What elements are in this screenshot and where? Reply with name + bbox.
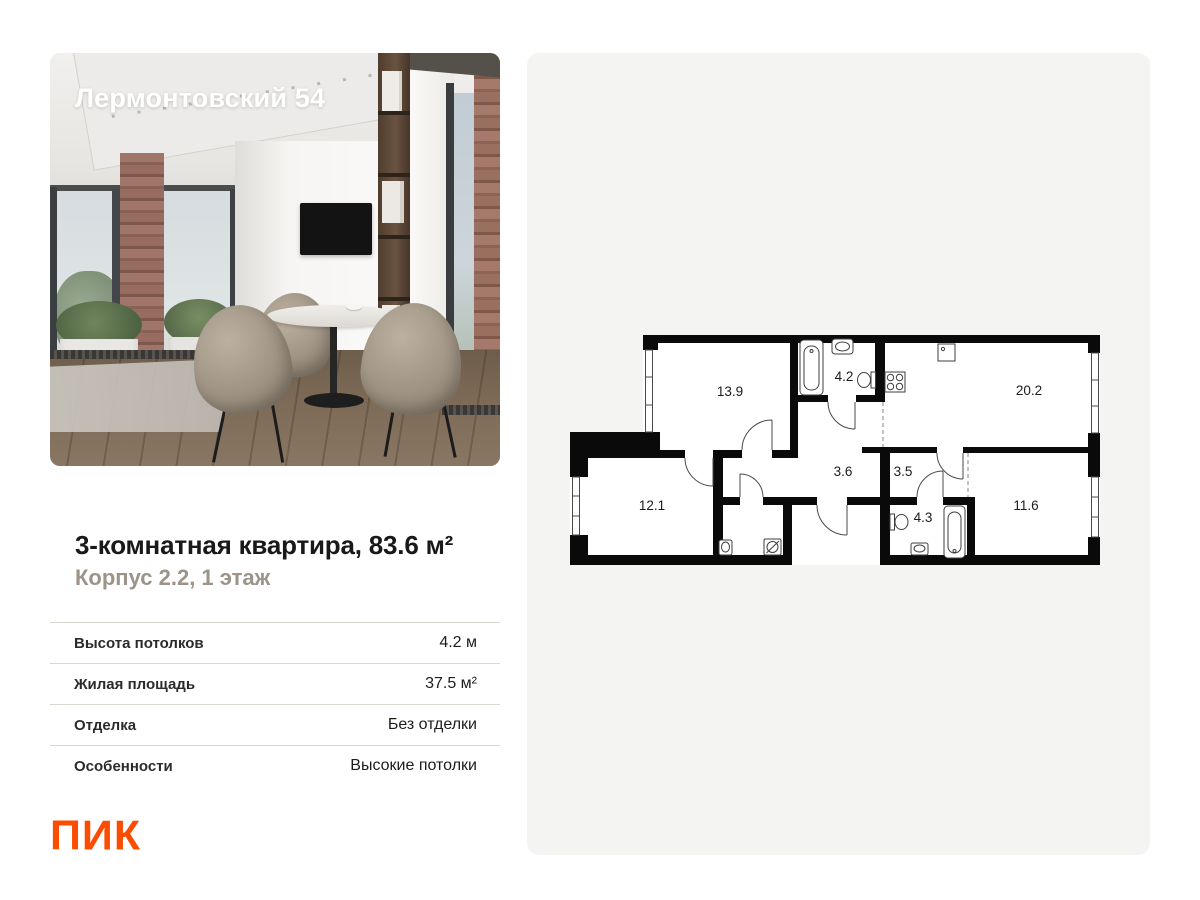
room-area-label: 12.1: [639, 498, 665, 513]
apartment-photo: Лермонтовский 54: [50, 53, 500, 466]
room-area-label: 4.3: [914, 510, 933, 525]
spec-value: Без отделки: [388, 716, 477, 734]
spec-value: 37.5 м²: [425, 675, 477, 693]
listing-title: 3-комнатная квартира, 83.6 м²: [75, 530, 505, 561]
room-area-label: 11.6: [1013, 498, 1038, 513]
project-name-overlay: Лермонтовский 54: [75, 83, 325, 114]
photo-art-tv: [300, 203, 372, 255]
spec-label: Отделка: [74, 717, 136, 734]
floorplan-svg: 13.9 4.2 20.2 3.6 3.5 12.1 4.3 11.6: [560, 320, 1120, 580]
spec-label: Высота потолков: [74, 635, 204, 652]
spec-row-living-area: Жилая площадь 37.5 м²: [50, 663, 500, 704]
listing-subtitle: Корпус 2.2, 1 этаж: [75, 565, 505, 591]
room-area-label: 13.9: [717, 384, 743, 399]
spec-value: Высокие потолки: [350, 757, 477, 775]
spec-label: Особенности: [74, 758, 173, 775]
pik-logo: ПИК: [50, 813, 141, 861]
photo-art-cup: [346, 303, 362, 310]
spec-row-finishing: Отделка Без отделки: [50, 704, 500, 745]
floorplan-card: 13.9 4.2 20.2 3.6 3.5 12.1 4.3 11.6: [527, 53, 1150, 855]
toilet-icon: [890, 514, 895, 530]
toilet-icon: [871, 372, 876, 388]
photo-art-books: [382, 71, 402, 111]
photo-art-table-base: [304, 393, 364, 408]
spec-value: 4.2 м: [439, 634, 477, 652]
room-area-label: 3.6: [834, 464, 853, 479]
room-area-label: 4.2: [835, 369, 854, 384]
spec-row-features: Особенности Высокие потолки: [50, 745, 500, 786]
photo-art-floor-vent: [442, 405, 500, 415]
listing-widget: Лермонтовский 54 3-комнатная квартира, 8…: [0, 0, 1200, 900]
room-area-label: 20.2: [1016, 383, 1042, 398]
spec-table: Высота потолков 4.2 м Жилая площадь 37.5…: [50, 622, 500, 786]
photo-art-table-stem: [330, 315, 337, 399]
photo-art-books: [382, 181, 404, 223]
spec-label: Жилая площадь: [74, 676, 195, 693]
room-area-label: 3.5: [894, 464, 913, 479]
kitchen-sink-icon: [938, 344, 955, 361]
spec-row-ceiling-height: Высота потолков 4.2 м: [50, 622, 500, 663]
